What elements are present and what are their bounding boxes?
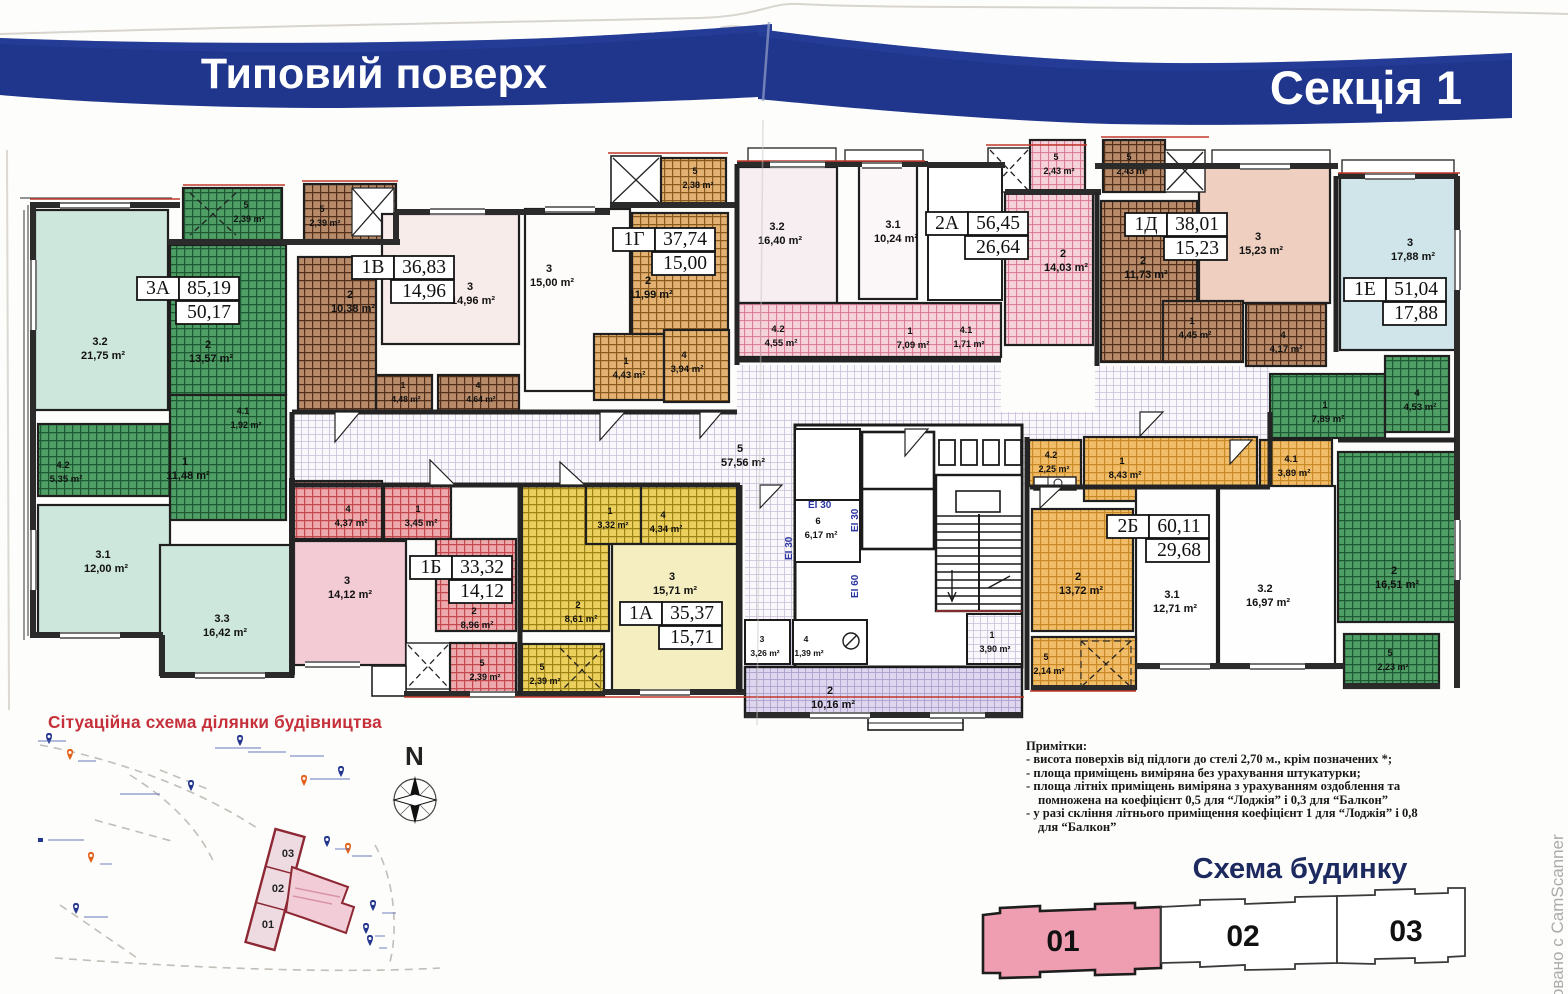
svg-text:13,72 m²: 13,72 m² bbox=[1059, 585, 1103, 597]
svg-text:15,00 m²: 15,00 m² bbox=[530, 277, 574, 289]
svg-text:36,83: 36,83 bbox=[402, 257, 446, 278]
svg-text:1,71 m²: 1,71 m² bbox=[953, 339, 984, 349]
svg-text:8,61 m²: 8,61 m² bbox=[565, 614, 598, 625]
svg-text:1: 1 bbox=[1322, 400, 1328, 411]
svg-text:29,68: 29,68 bbox=[1157, 540, 1201, 561]
svg-text:2: 2 bbox=[645, 275, 651, 287]
svg-text:Отсканировано с CamScanner: Отсканировано с CamScanner bbox=[1548, 834, 1567, 994]
svg-text:16,97 m²: 16,97 m² bbox=[1246, 597, 1290, 609]
svg-text:5: 5 bbox=[1053, 152, 1058, 162]
svg-text:13,57 m²: 13,57 m² bbox=[189, 353, 233, 365]
svg-text:3: 3 bbox=[1255, 231, 1261, 243]
svg-text:15,71 m²: 15,71 m² bbox=[653, 585, 697, 597]
svg-text:4,53 m²: 4,53 m² bbox=[1404, 402, 1437, 413]
svg-text:14,12 m²: 14,12 m² bbox=[328, 589, 372, 601]
svg-text:3.1: 3.1 bbox=[885, 219, 900, 231]
svg-text:1: 1 bbox=[989, 630, 994, 640]
svg-text:Секція 1: Секція 1 bbox=[1270, 61, 1462, 114]
svg-text:5: 5 bbox=[1126, 152, 1131, 162]
svg-text:2,39 m²: 2,39 m² bbox=[233, 214, 264, 224]
svg-text:4,17 m²: 4,17 m² bbox=[1270, 344, 1303, 355]
svg-text:4,43 m²: 4,43 m² bbox=[613, 370, 646, 381]
svg-text:5: 5 bbox=[479, 658, 484, 668]
svg-text:2,43 m²: 2,43 m² bbox=[1043, 166, 1074, 176]
svg-text:4.2: 4.2 bbox=[1045, 450, 1058, 460]
svg-text:1Г: 1Г bbox=[623, 229, 644, 250]
svg-text:2А: 2А bbox=[935, 213, 959, 234]
svg-text:10,24 m²: 10,24 m² bbox=[874, 233, 918, 245]
svg-text:4: 4 bbox=[476, 380, 481, 390]
svg-text:12,71 m²: 12,71 m² bbox=[1153, 603, 1197, 615]
svg-text:15,23: 15,23 bbox=[1175, 238, 1219, 259]
svg-text:1,39 m²: 1,39 m² bbox=[794, 648, 823, 658]
svg-text:85,19: 85,19 bbox=[187, 278, 231, 299]
svg-text:17,88 m²: 17,88 m² bbox=[1391, 251, 1435, 263]
svg-text:3.2: 3.2 bbox=[769, 221, 784, 233]
svg-text:EI 30: EI 30 bbox=[784, 536, 795, 560]
svg-text:2Б: 2Б bbox=[1118, 516, 1139, 537]
svg-text:11,99 m²: 11,99 m² bbox=[629, 289, 673, 301]
svg-text:16,42 m²: 16,42 m² bbox=[203, 627, 247, 639]
svg-text:1,92 m²: 1,92 m² bbox=[230, 420, 261, 430]
svg-text:51,04: 51,04 bbox=[1394, 279, 1438, 300]
svg-text:3,32 m²: 3,32 m² bbox=[597, 520, 628, 530]
svg-text:4.1: 4.1 bbox=[1284, 454, 1298, 465]
svg-text:2: 2 bbox=[1075, 571, 1081, 583]
svg-text:3.1: 3.1 bbox=[1164, 589, 1179, 601]
svg-text:5: 5 bbox=[737, 443, 743, 455]
svg-text:3: 3 bbox=[1407, 237, 1413, 249]
svg-text:1Б: 1Б bbox=[421, 557, 442, 578]
svg-text:Сітуаційна схема ділянки будів: Сітуаційна схема ділянки будівництва bbox=[48, 712, 382, 732]
svg-text:4,34 m²: 4,34 m² bbox=[650, 524, 683, 535]
svg-text:5: 5 bbox=[539, 662, 544, 672]
svg-text:1: 1 bbox=[415, 504, 421, 515]
svg-text:38,01: 38,01 bbox=[1175, 214, 1219, 235]
svg-text:2,23 m²: 2,23 m² bbox=[1377, 662, 1408, 672]
svg-text:2: 2 bbox=[1391, 565, 1397, 577]
svg-text:5: 5 bbox=[692, 166, 697, 176]
svg-text:4,64 m²: 4,64 m² bbox=[466, 394, 495, 404]
svg-text:12,00 m²: 12,00 m² bbox=[84, 563, 128, 575]
svg-text:33,32: 33,32 bbox=[460, 557, 504, 578]
svg-text:15,00: 15,00 bbox=[663, 253, 707, 274]
svg-text:3: 3 bbox=[467, 281, 473, 293]
svg-text:1В: 1В bbox=[362, 257, 385, 278]
svg-text:8,96 m²: 8,96 m² bbox=[461, 620, 494, 631]
svg-text:1: 1 bbox=[1189, 316, 1195, 327]
svg-text:4,37 m²: 4,37 m² bbox=[335, 518, 368, 529]
svg-text:2: 2 bbox=[827, 685, 833, 697]
svg-text:4: 4 bbox=[1280, 330, 1286, 341]
svg-text:35,37: 35,37 bbox=[670, 603, 714, 624]
svg-text:15,71: 15,71 bbox=[670, 627, 714, 648]
svg-text:50,17: 50,17 bbox=[187, 302, 231, 323]
svg-text:11,48 m²: 11,48 m² bbox=[166, 470, 210, 482]
svg-text:5: 5 bbox=[243, 200, 248, 210]
svg-text:3: 3 bbox=[669, 571, 675, 583]
svg-text:1: 1 bbox=[607, 506, 612, 516]
svg-text:1Е: 1Е bbox=[1354, 279, 1376, 300]
svg-text:2,38 m²: 2,38 m² bbox=[682, 180, 713, 190]
svg-text:03: 03 bbox=[1389, 915, 1422, 948]
svg-text:2,39 m²: 2,39 m² bbox=[309, 218, 340, 228]
svg-text:60,11: 60,11 bbox=[1157, 516, 1200, 537]
svg-text:14,12: 14,12 bbox=[460, 581, 504, 602]
svg-text:1: 1 bbox=[401, 380, 406, 390]
svg-text:EI 30: EI 30 bbox=[808, 500, 832, 511]
svg-text:14,03 m²: 14,03 m² bbox=[1044, 262, 1088, 274]
svg-text:57,56 m²: 57,56 m² bbox=[721, 457, 765, 469]
svg-text:3,45 m²: 3,45 m² bbox=[405, 518, 438, 529]
svg-text:02: 02 bbox=[272, 883, 284, 895]
svg-text:26,64: 26,64 bbox=[976, 237, 1020, 258]
svg-text:2: 2 bbox=[1060, 248, 1066, 260]
svg-text:14,96: 14,96 bbox=[402, 281, 446, 302]
svg-text:3.2: 3.2 bbox=[1257, 583, 1272, 595]
svg-text:01: 01 bbox=[1046, 925, 1079, 958]
svg-text:5: 5 bbox=[319, 204, 324, 214]
svg-text:1А: 1А bbox=[629, 603, 653, 624]
svg-text:Типовий поверх: Типовий поверх bbox=[201, 50, 547, 98]
svg-text:17,88: 17,88 bbox=[1394, 303, 1438, 324]
svg-text:4: 4 bbox=[804, 634, 809, 644]
svg-text:3,26 m²: 3,26 m² bbox=[750, 648, 779, 658]
svg-text:1: 1 bbox=[1119, 456, 1125, 467]
svg-text:01: 01 bbox=[262, 919, 274, 931]
svg-text:4: 4 bbox=[1414, 388, 1420, 399]
svg-text:10,38 m²: 10,38 m² bbox=[331, 303, 375, 315]
svg-text:Схема будинку: Схема будинку bbox=[1193, 853, 1408, 885]
svg-text:- площа літніх приміщень вимір: - площа літніх приміщень виміряна з урах… bbox=[1026, 779, 1401, 793]
svg-text:3А: 3А bbox=[146, 278, 170, 299]
svg-text:4: 4 bbox=[345, 504, 351, 515]
svg-text:EI 60: EI 60 bbox=[850, 574, 861, 598]
svg-text:- площа приміщень виміряна без: - площа приміщень виміряна без урахуванн… bbox=[1026, 766, 1361, 780]
svg-text:3: 3 bbox=[344, 575, 350, 587]
svg-text:4.1: 4.1 bbox=[960, 325, 973, 335]
svg-text:2: 2 bbox=[575, 600, 580, 611]
svg-text:03: 03 bbox=[282, 848, 294, 860]
svg-text:2,39 m²: 2,39 m² bbox=[529, 676, 560, 686]
svg-text:56,45: 56,45 bbox=[976, 213, 1020, 234]
svg-text:7,09 m²: 7,09 m² bbox=[897, 340, 930, 351]
svg-text:2: 2 bbox=[347, 289, 353, 301]
svg-text:- у разі скління літнього прим: - у разі скління літнього приміщення кое… bbox=[1026, 806, 1418, 820]
svg-text:4: 4 bbox=[660, 510, 666, 521]
svg-text:4,55 m²: 4,55 m² bbox=[765, 338, 798, 349]
svg-text:2: 2 bbox=[1140, 255, 1146, 267]
svg-text:3.1: 3.1 bbox=[95, 549, 110, 561]
svg-text:4.2: 4.2 bbox=[56, 460, 69, 471]
svg-text:4.1: 4.1 bbox=[237, 406, 250, 416]
svg-text:N: N bbox=[405, 741, 424, 771]
svg-text:Примітки:: Примітки: bbox=[1026, 739, 1087, 753]
svg-text:5: 5 bbox=[1387, 648, 1392, 658]
svg-text:8,43 m²: 8,43 m² bbox=[1109, 470, 1142, 481]
svg-text:3: 3 bbox=[760, 634, 765, 644]
svg-text:1: 1 bbox=[623, 356, 629, 367]
svg-text:16,40 m²: 16,40 m² bbox=[758, 235, 802, 247]
svg-text:2,14 m²: 2,14 m² bbox=[1033, 666, 1064, 676]
svg-text:21,75 m²: 21,75 m² bbox=[81, 350, 125, 362]
svg-text:3.2: 3.2 bbox=[92, 336, 107, 348]
svg-text:4.2: 4.2 bbox=[771, 324, 784, 335]
svg-text:4: 4 bbox=[681, 350, 687, 361]
svg-text:3,90 m²: 3,90 m² bbox=[979, 644, 1010, 654]
svg-text:11,73 m²: 11,73 m² bbox=[1124, 269, 1168, 281]
svg-text:помножена на коефіцієнт 0,5 дл: помножена на коефіцієнт 0,5 для “Лоджія”… bbox=[1038, 793, 1388, 807]
svg-text:37,74: 37,74 bbox=[663, 229, 707, 250]
svg-text:1Д: 1Д bbox=[1134, 214, 1157, 235]
svg-text:2: 2 bbox=[471, 606, 476, 617]
svg-text:5: 5 bbox=[1043, 652, 1048, 662]
svg-text:5,35 m²: 5,35 m² bbox=[50, 474, 83, 485]
svg-text:14,96 m²: 14,96 m² bbox=[451, 295, 495, 307]
svg-text:15,23 m²: 15,23 m² bbox=[1239, 245, 1283, 257]
svg-text:1: 1 bbox=[182, 456, 188, 468]
svg-text:3.3: 3.3 bbox=[214, 613, 229, 625]
svg-text:16,51 m²: 16,51 m² bbox=[1375, 579, 1419, 591]
svg-text:3,89 m²: 3,89 m² bbox=[1278, 468, 1311, 479]
svg-text:2,39 m²: 2,39 m² bbox=[469, 672, 500, 682]
svg-text:1: 1 bbox=[907, 326, 913, 337]
svg-text:3: 3 bbox=[546, 263, 552, 275]
svg-text:02: 02 bbox=[1226, 920, 1259, 953]
svg-text:2: 2 bbox=[205, 339, 211, 351]
svg-text:4,48 m²: 4,48 m² bbox=[391, 394, 420, 404]
svg-text:6,17 m²: 6,17 m² bbox=[805, 530, 838, 541]
svg-text:2,25 m²: 2,25 m² bbox=[1038, 464, 1069, 474]
svg-text:10,16 m²: 10,16 m² bbox=[811, 699, 855, 711]
svg-text:- висота поверхів від підлоги: - висота поверхів від підлоги до стелі 2… bbox=[1026, 752, 1392, 766]
svg-text:для “Балкон”: для “Балкон” bbox=[1038, 820, 1116, 834]
svg-text:6: 6 bbox=[815, 516, 820, 527]
svg-text:3,94 m²: 3,94 m² bbox=[671, 364, 704, 375]
svg-text:7,89 m²: 7,89 m² bbox=[1312, 414, 1345, 425]
svg-text:EI 30: EI 30 bbox=[850, 508, 861, 532]
svg-text:4,45 m²: 4,45 m² bbox=[1179, 330, 1212, 341]
